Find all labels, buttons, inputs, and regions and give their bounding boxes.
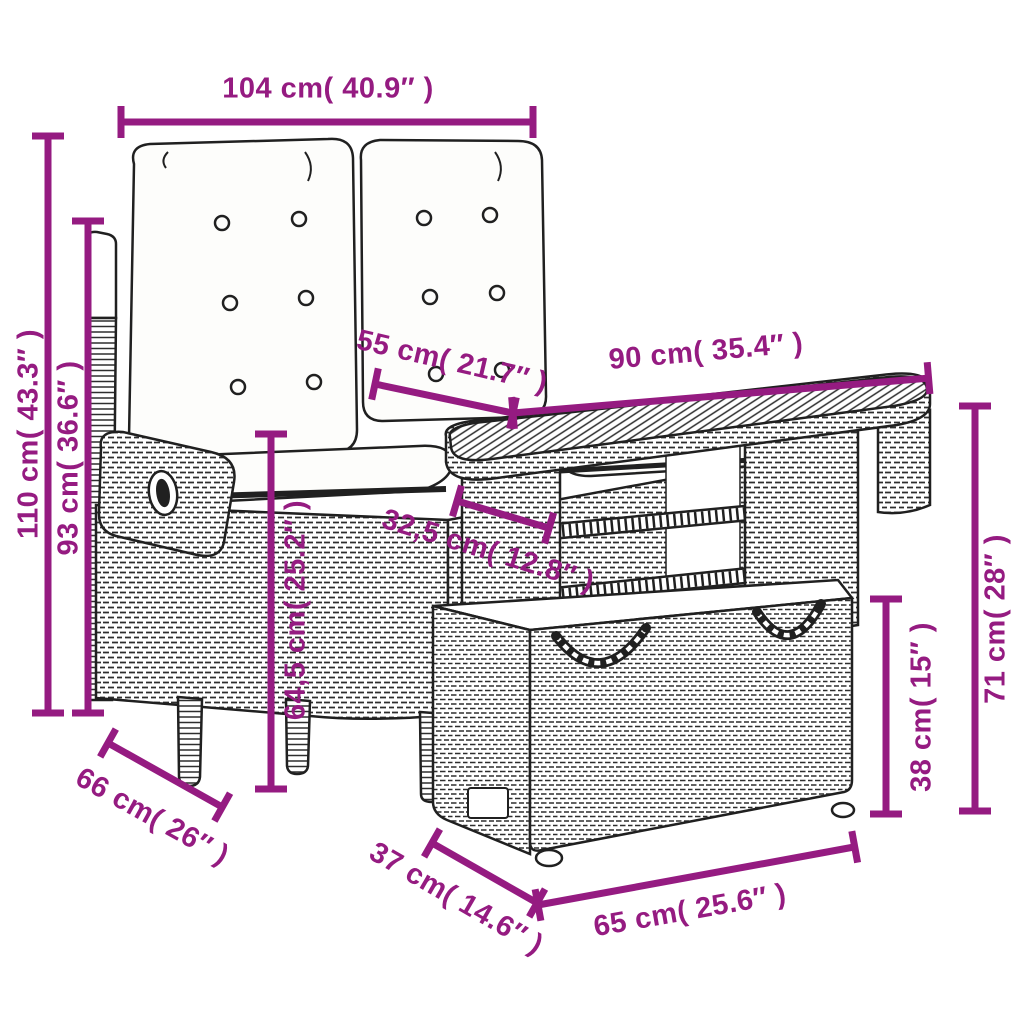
dim-line-ottoman-height <box>870 599 902 814</box>
dim-label-ottoman-height: 38 cm( 15″ ) <box>906 622 939 792</box>
dim-label-bench-height: 110 cm( 43.3″ ) <box>13 329 46 539</box>
dim-label-seat-to-floor: 64,5 cm( 25.2″ ) <box>280 500 313 720</box>
diagram-canvas <box>0 0 1024 1024</box>
furniture-line-art <box>86 139 930 866</box>
dim-line-bench-width <box>121 106 533 138</box>
dim-label-backrest-height: 93 cm( 36.6″ ) <box>53 361 86 556</box>
ottoman <box>433 580 854 866</box>
bench-back-cushion-left <box>129 139 357 459</box>
dimension-diagram: 104 cm( 40.9″ ) 110 cm( 43.3″ ) 93 cm( 3… <box>0 0 1024 1024</box>
dim-label-table-height: 71 cm( 28″ ) <box>980 534 1013 704</box>
dim-label-bench-width: 104 cm( 40.9″ ) <box>222 73 434 106</box>
